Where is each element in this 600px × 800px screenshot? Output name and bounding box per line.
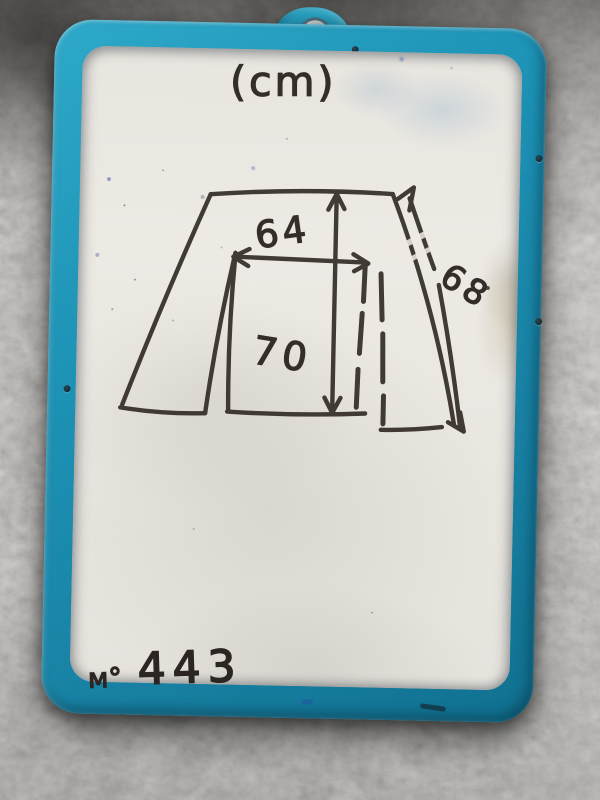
whiteboard-surface: (cm) 64 70 68 м° 443 [69,46,522,691]
board-number: м° 443 [87,641,243,697]
width-arrow [233,249,368,272]
length-measurement: 70 [250,331,315,379]
unit-label: (cm) [230,62,337,103]
whiteboard: (cm) 64 70 68 м° 443 [41,19,547,723]
length-arrow [324,194,345,413]
width-measurement: 64 [253,210,313,254]
photo-scene: (cm) 64 70 68 м° 443 [0,0,600,800]
number-prefix: м° [88,663,123,695]
frame-ink-mark [301,699,313,704]
number-value: 443 [137,641,244,695]
